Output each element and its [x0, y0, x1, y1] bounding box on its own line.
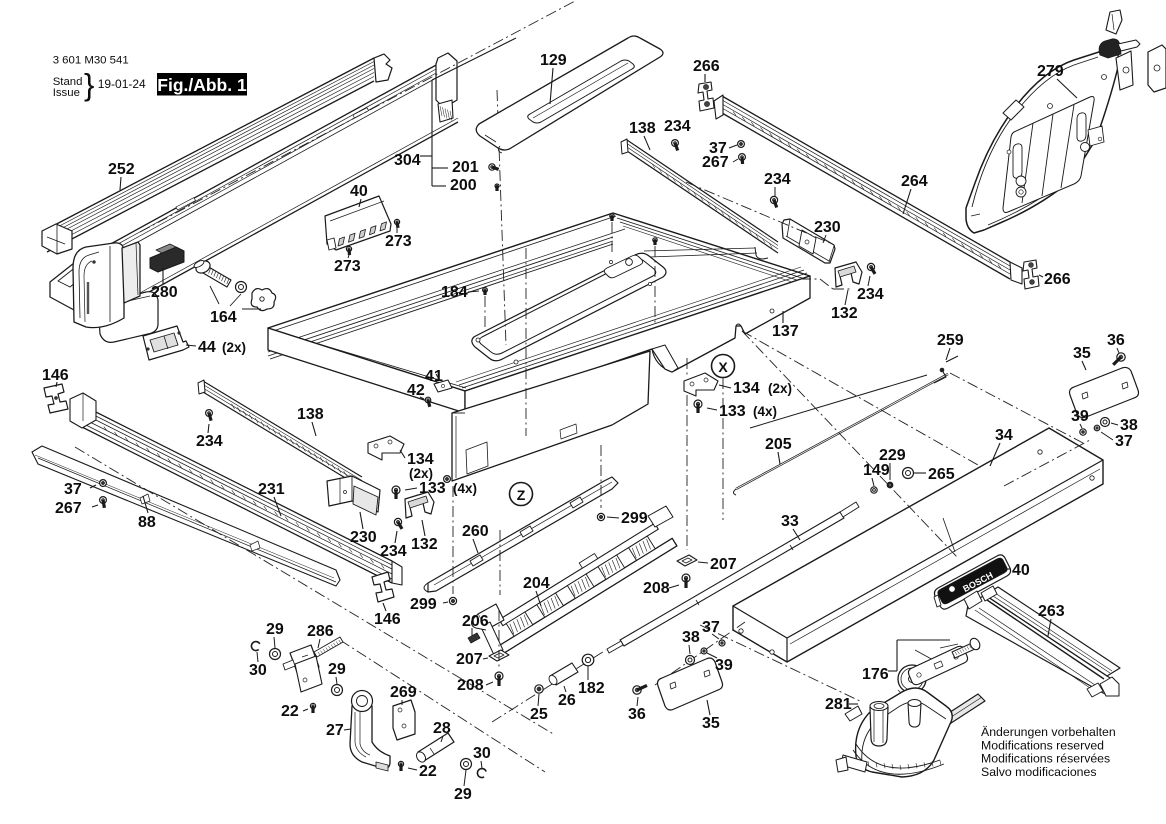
svg-text:39: 39 — [715, 657, 733, 674]
svg-text:259: 259 — [937, 332, 964, 349]
svg-text:27: 27 — [326, 722, 344, 739]
svg-text:230: 230 — [814, 219, 841, 236]
svg-text:Änderungen vorbehalten: Änderungen vorbehalten — [981, 725, 1116, 739]
svg-text:149: 149 — [863, 462, 890, 479]
svg-text:(4x): (4x) — [753, 404, 777, 419]
svg-text:132: 132 — [831, 305, 858, 322]
svg-text:Modifications reserved: Modifications reserved — [981, 738, 1104, 752]
svg-text:36: 36 — [628, 706, 646, 723]
svg-text:Z: Z — [517, 487, 526, 503]
svg-text:(2x): (2x) — [409, 466, 433, 481]
svg-text:30: 30 — [473, 745, 491, 762]
svg-text:}: } — [84, 67, 94, 102]
svg-text:137: 137 — [772, 323, 799, 340]
svg-text:266: 266 — [693, 58, 720, 75]
svg-text:35: 35 — [702, 715, 720, 732]
svg-text:280: 280 — [151, 284, 178, 301]
svg-text:146: 146 — [374, 611, 401, 628]
svg-text:138: 138 — [629, 120, 656, 137]
svg-text:230: 230 — [350, 529, 377, 546]
svg-text:164: 164 — [210, 309, 237, 326]
svg-text:133: 133 — [419, 480, 446, 497]
svg-text:176: 176 — [862, 666, 889, 683]
svg-text:(2x): (2x) — [768, 381, 792, 396]
svg-text:Salvo modificaciones: Salvo modificaciones — [981, 765, 1097, 779]
svg-text:205: 205 — [765, 436, 792, 453]
svg-text:231: 231 — [258, 481, 285, 498]
svg-text:267: 267 — [702, 154, 729, 171]
svg-text:42: 42 — [407, 382, 425, 399]
svg-text:265: 265 — [928, 466, 955, 483]
svg-text:207: 207 — [710, 556, 737, 573]
svg-text:37: 37 — [702, 619, 720, 636]
svg-text:146: 146 — [42, 367, 69, 384]
svg-text:279: 279 — [1037, 63, 1064, 80]
svg-text:29: 29 — [328, 661, 346, 678]
svg-text:Issue: Issue — [53, 87, 80, 99]
svg-text:234: 234 — [664, 118, 691, 135]
svg-text:229: 229 — [879, 447, 906, 464]
svg-text:234: 234 — [380, 543, 407, 560]
svg-text:40: 40 — [350, 183, 368, 200]
svg-text:286: 286 — [307, 623, 334, 640]
svg-text:30: 30 — [249, 662, 267, 679]
svg-text:Fig./Abb. 1: Fig./Abb. 1 — [157, 75, 247, 95]
svg-text:26: 26 — [558, 692, 576, 709]
svg-text:269: 269 — [390, 684, 417, 701]
svg-text:207: 207 — [456, 651, 483, 668]
svg-text:Modifications réservées: Modifications réservées — [981, 752, 1110, 766]
svg-text:273: 273 — [334, 258, 361, 275]
svg-text:234: 234 — [764, 171, 791, 188]
svg-text:134: 134 — [733, 380, 760, 397]
svg-text:132: 132 — [411, 536, 438, 553]
svg-text:37: 37 — [64, 481, 82, 498]
svg-text:25: 25 — [530, 706, 548, 723]
svg-text:39: 39 — [1071, 408, 1089, 425]
svg-text:29: 29 — [266, 621, 284, 638]
svg-text:200: 200 — [450, 177, 477, 194]
svg-text:304: 304 — [394, 152, 421, 169]
svg-text:41: 41 — [425, 368, 443, 385]
svg-text:44: 44 — [198, 339, 216, 356]
svg-text:28: 28 — [433, 720, 451, 737]
svg-text:299: 299 — [621, 510, 648, 527]
svg-text:299: 299 — [410, 596, 437, 613]
svg-text:204: 204 — [523, 575, 550, 592]
svg-text:22: 22 — [281, 703, 299, 720]
svg-text:34: 34 — [995, 427, 1013, 444]
svg-text:267: 267 — [55, 500, 82, 517]
svg-text:208: 208 — [457, 677, 484, 694]
svg-text:138: 138 — [297, 406, 324, 423]
svg-text:40: 40 — [1012, 562, 1030, 579]
svg-text:129: 129 — [540, 52, 567, 69]
svg-text:38: 38 — [1120, 417, 1138, 434]
svg-text:37: 37 — [1115, 433, 1133, 450]
svg-text:3 601 M30 541: 3 601 M30 541 — [53, 55, 129, 67]
svg-text:260: 260 — [462, 523, 489, 540]
svg-text:22: 22 — [419, 763, 437, 780]
svg-text:234: 234 — [196, 433, 223, 450]
svg-text:252: 252 — [108, 161, 135, 178]
svg-text:266: 266 — [1044, 271, 1071, 288]
svg-text:19-01-24: 19-01-24 — [98, 77, 146, 91]
svg-text:36: 36 — [1107, 332, 1125, 349]
svg-text:201: 201 — [452, 159, 479, 176]
svg-text:208: 208 — [643, 580, 670, 597]
svg-text:234: 234 — [857, 286, 884, 303]
svg-text:88: 88 — [138, 514, 156, 531]
svg-text:(2x): (2x) — [222, 340, 246, 355]
svg-text:X: X — [718, 359, 728, 375]
svg-text:35: 35 — [1073, 345, 1091, 362]
svg-text:281: 281 — [825, 696, 852, 713]
svg-text:273: 273 — [385, 233, 412, 250]
svg-text:33: 33 — [781, 513, 799, 530]
svg-text:29: 29 — [454, 786, 472, 803]
svg-text:264: 264 — [901, 173, 928, 190]
svg-text:182: 182 — [578, 680, 605, 697]
svg-text:263: 263 — [1038, 603, 1065, 620]
svg-text:184: 184 — [441, 284, 468, 301]
svg-text:38: 38 — [682, 629, 700, 646]
svg-text:(4x): (4x) — [453, 481, 477, 496]
svg-text:206: 206 — [462, 613, 489, 630]
